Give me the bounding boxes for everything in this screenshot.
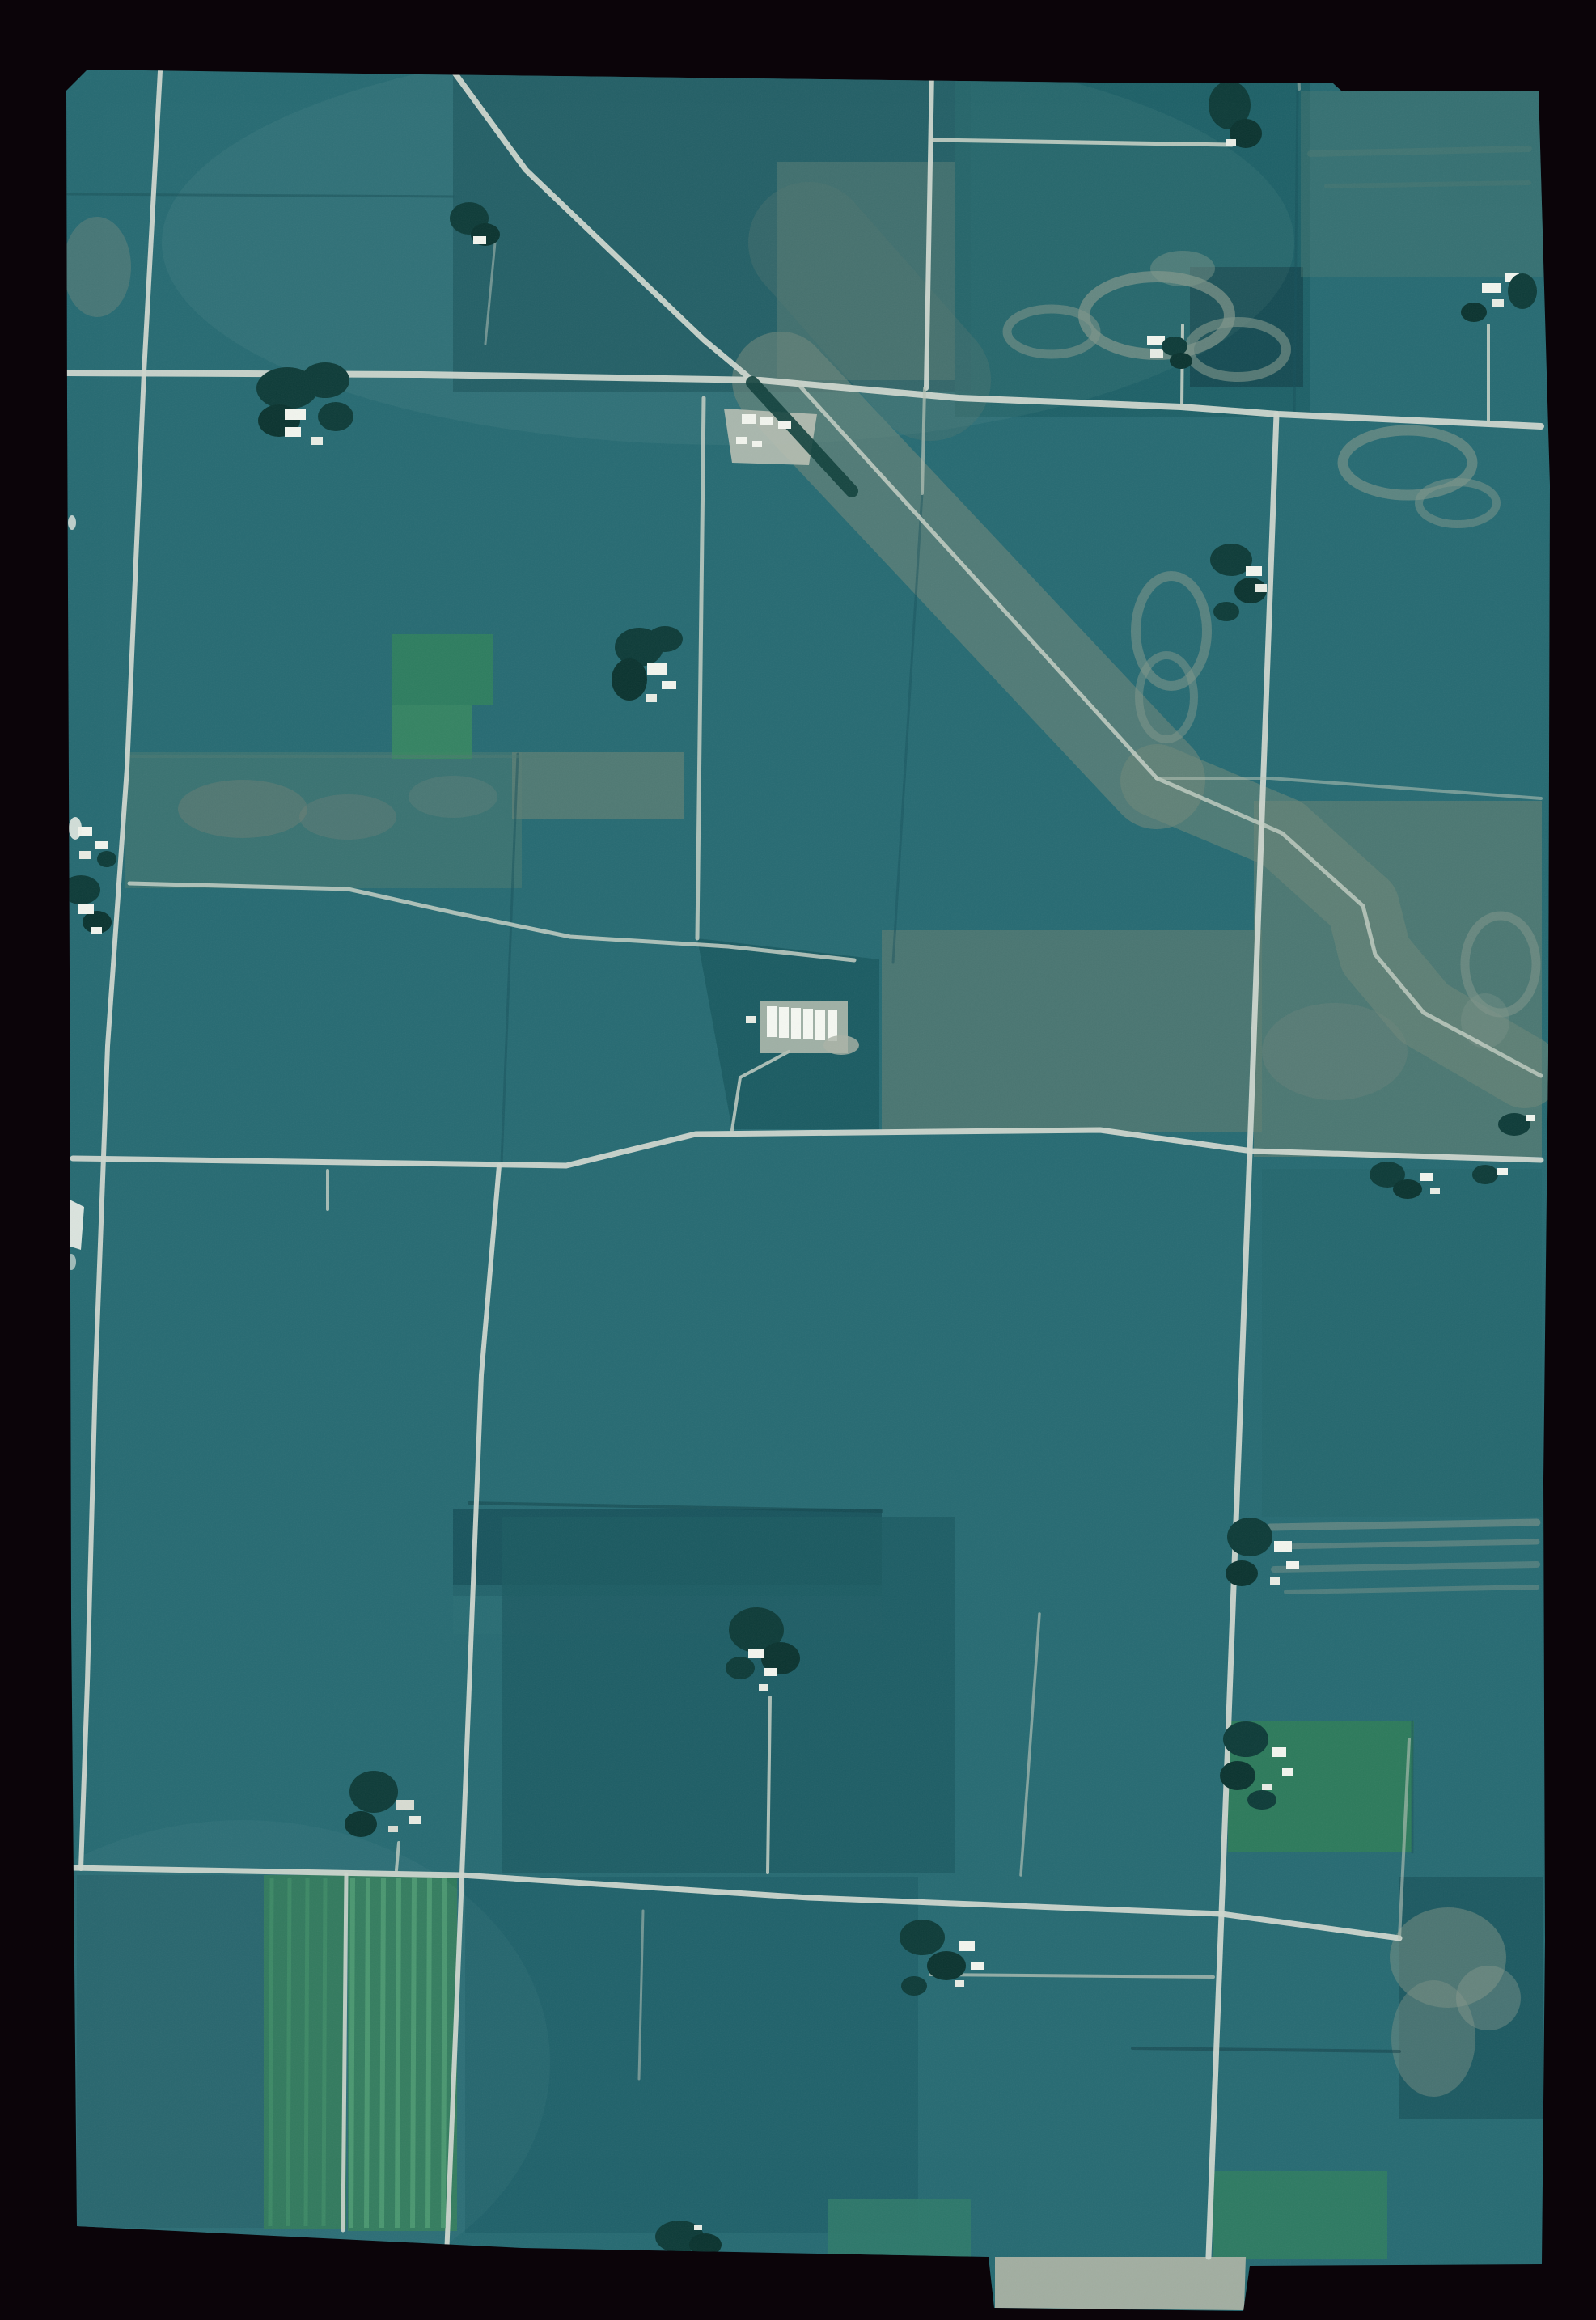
film-grain (65, 68, 1552, 2314)
aerial-photo-svg (0, 0, 1596, 2320)
aerial-photo (0, 35, 1552, 2314)
film-slide (0, 0, 1596, 2320)
